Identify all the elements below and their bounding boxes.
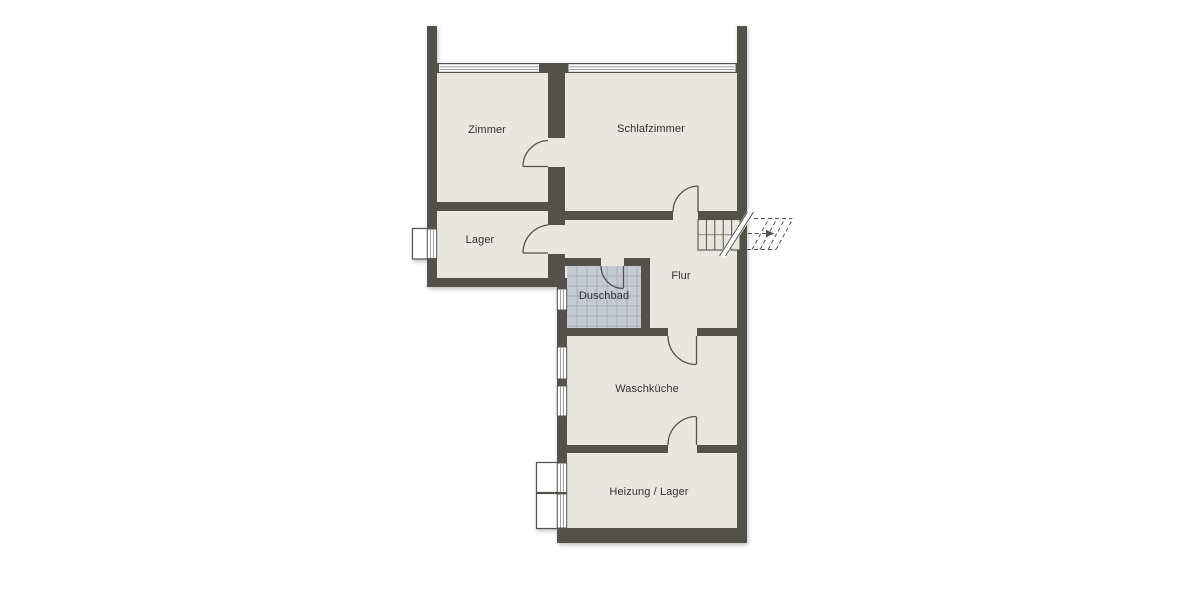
room-label-waschkueche: Waschküche [615,383,679,395]
building [413,26,748,543]
room-label-flur: Flur [671,270,690,282]
window-zimmer-top [439,64,540,73]
room-label-heizung-lager: Heizung / Lager [609,486,688,498]
window-duschbad-left [557,289,566,310]
room-label-duschbad: Duschbad [579,290,629,302]
window-lager-left [413,229,437,260]
window-heizung-left-2 [537,494,567,529]
stair-dashed-outside [747,219,793,250]
room-label-schlafzimmer: Schlafzimmer [617,123,685,135]
window-schlafzimmer-top [568,64,736,73]
room-label-zimmer: Zimmer [468,124,506,136]
window-heizung-left-1 [537,463,567,493]
room-label-lager: Lager [466,234,495,246]
window-waschkueche-left-1 [557,347,566,379]
floor-plan-canvas: Zimmer Schlafzimmer Lager Flur Duschbad … [0,0,1200,600]
window-waschkueche-left-2 [557,386,566,416]
